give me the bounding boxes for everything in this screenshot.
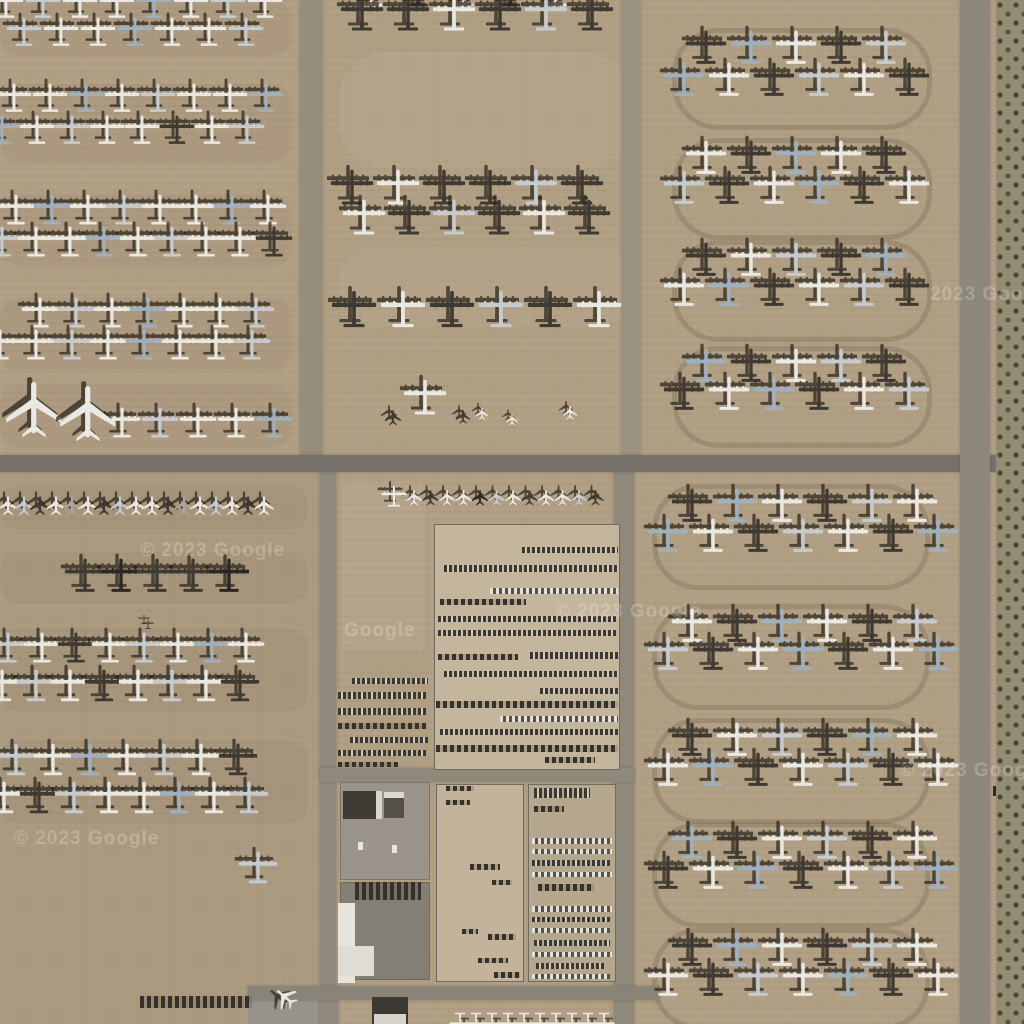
watermark-layer: © 2023 Google© 2023 Google© 2023 Google©… <box>0 0 1024 1024</box>
google-watermark: Google <box>344 620 415 642</box>
satellite-map[interactable]: © 2023 Google© 2023 Google© 2023 Google©… <box>0 0 1024 1024</box>
google-watermark: © 2023 Google <box>14 828 159 850</box>
google-watermark: © 2023 Google <box>900 760 1024 782</box>
google-watermark: © 2023 Google <box>140 540 285 562</box>
google-watermark: 2023 Google <box>930 284 1024 306</box>
google-watermark: © 2023 Google <box>556 601 701 623</box>
